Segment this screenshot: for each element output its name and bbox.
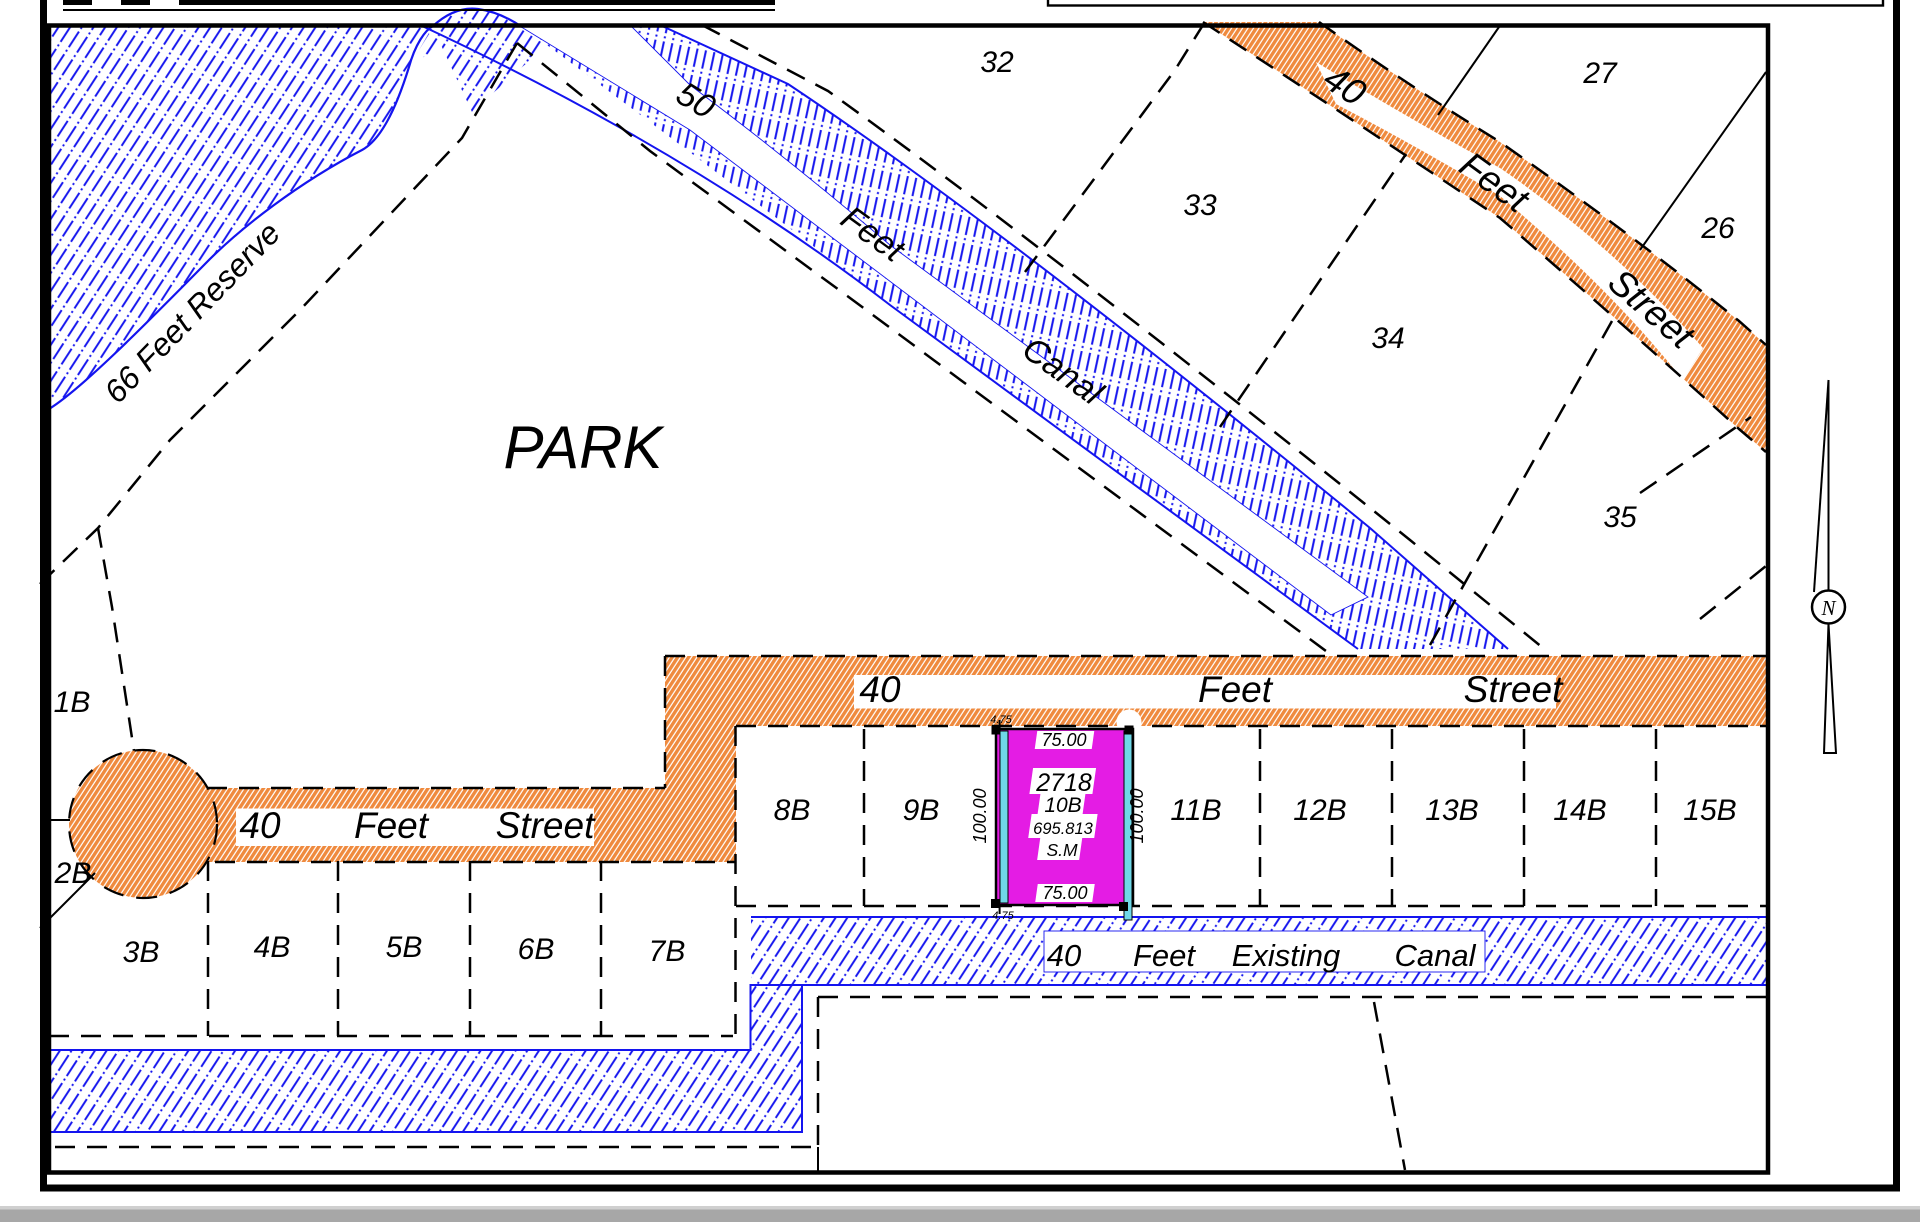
svg-text:2718: 2718 <box>1035 769 1092 797</box>
svg-text:100.00: 100.00 <box>970 788 990 843</box>
svg-text:695.813: 695.813 <box>1033 820 1093 838</box>
svg-text:40: 40 <box>859 669 901 710</box>
svg-text:14B: 14B <box>1553 794 1606 827</box>
svg-text:100.00: 100.00 <box>1127 788 1147 843</box>
svg-text:40: 40 <box>1047 938 1081 973</box>
svg-text:13B: 13B <box>1425 794 1478 827</box>
svg-text:75.00: 75.00 <box>1042 883 1087 903</box>
svg-text:3B: 3B <box>123 936 160 969</box>
svg-text:N: N <box>1820 596 1836 620</box>
svg-text:Street: Street <box>1464 669 1564 710</box>
svg-text:S.M: S.M <box>1046 840 1078 860</box>
svg-text:Feet: Feet <box>1133 938 1196 973</box>
svg-text:6B: 6B <box>518 933 555 966</box>
svg-text:35: 35 <box>1603 501 1637 534</box>
svg-text:1B: 1B <box>54 686 91 719</box>
svg-text:34: 34 <box>1371 322 1404 355</box>
svg-text:Street: Street <box>496 805 596 846</box>
svg-text:32: 32 <box>980 46 1014 79</box>
svg-text:40: 40 <box>239 805 281 846</box>
svg-text:Feet: Feet <box>1198 669 1274 710</box>
svg-text:4B: 4B <box>254 931 291 964</box>
svg-text:33: 33 <box>1183 189 1217 222</box>
svg-text:Feet: Feet <box>354 805 430 846</box>
svg-text:27: 27 <box>1582 57 1618 90</box>
svg-text:Canal: Canal <box>1395 938 1477 973</box>
svg-text:8B: 8B <box>774 794 811 827</box>
svg-text:4.75: 4.75 <box>990 714 1012 726</box>
svg-text:26: 26 <box>1700 212 1735 245</box>
svg-text:5B: 5B <box>386 931 423 964</box>
svg-text:PARK: PARK <box>504 414 666 481</box>
svg-text:4.75: 4.75 <box>992 910 1014 922</box>
svg-text:2B: 2B <box>54 857 92 890</box>
svg-text:75.00: 75.00 <box>1041 730 1086 750</box>
svg-text:10B: 10B <box>1044 794 1081 817</box>
svg-text:Existing: Existing <box>1232 938 1341 973</box>
svg-text:9B: 9B <box>903 794 940 827</box>
svg-text:12B: 12B <box>1293 794 1346 827</box>
svg-text:7B: 7B <box>649 935 686 968</box>
svg-text:15B: 15B <box>1683 794 1736 827</box>
svg-text:11B: 11B <box>1170 794 1221 827</box>
